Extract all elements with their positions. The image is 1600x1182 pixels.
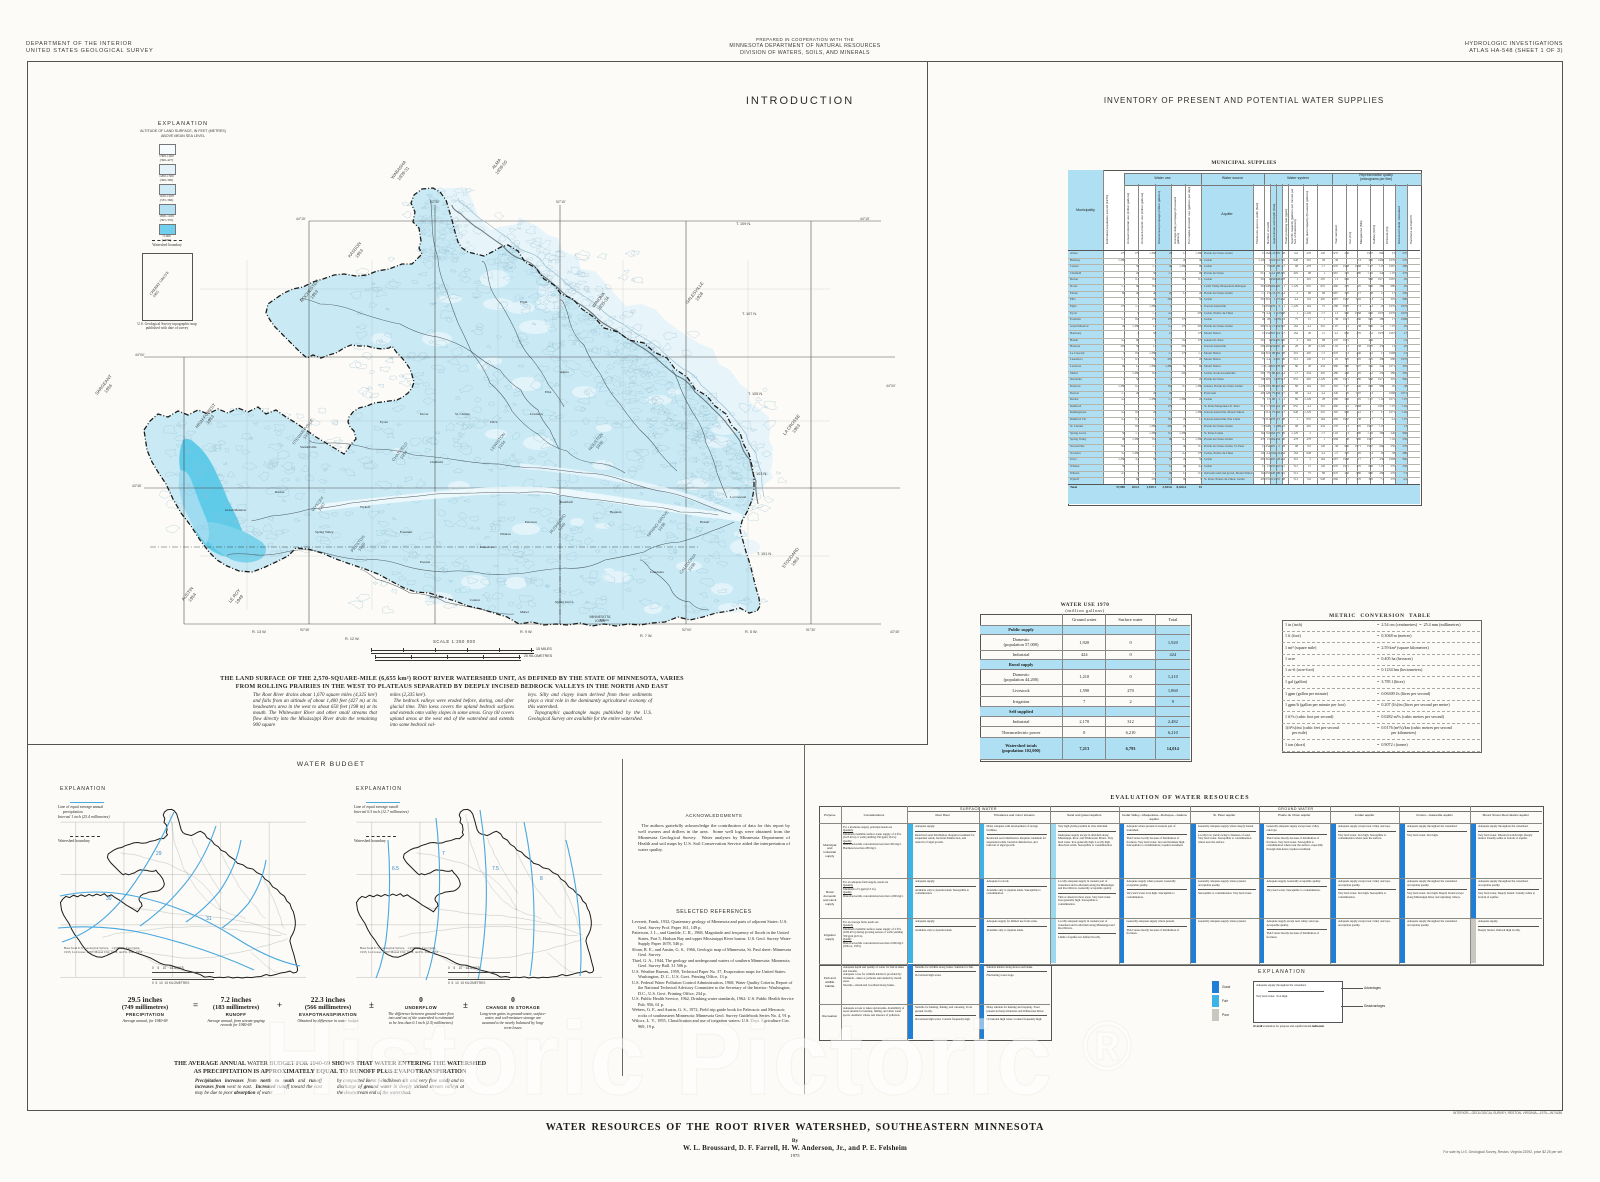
svg-text:8: 8 (540, 876, 543, 882)
svg-text:29: 29 (156, 851, 162, 857)
svg-text:7: 7 (442, 851, 445, 857)
svg-text:6.5: 6.5 (392, 866, 399, 872)
svg-text:7.5: 7.5 (492, 866, 499, 872)
svg-text:31: 31 (206, 916, 212, 922)
svg-text:30: 30 (106, 896, 112, 902)
